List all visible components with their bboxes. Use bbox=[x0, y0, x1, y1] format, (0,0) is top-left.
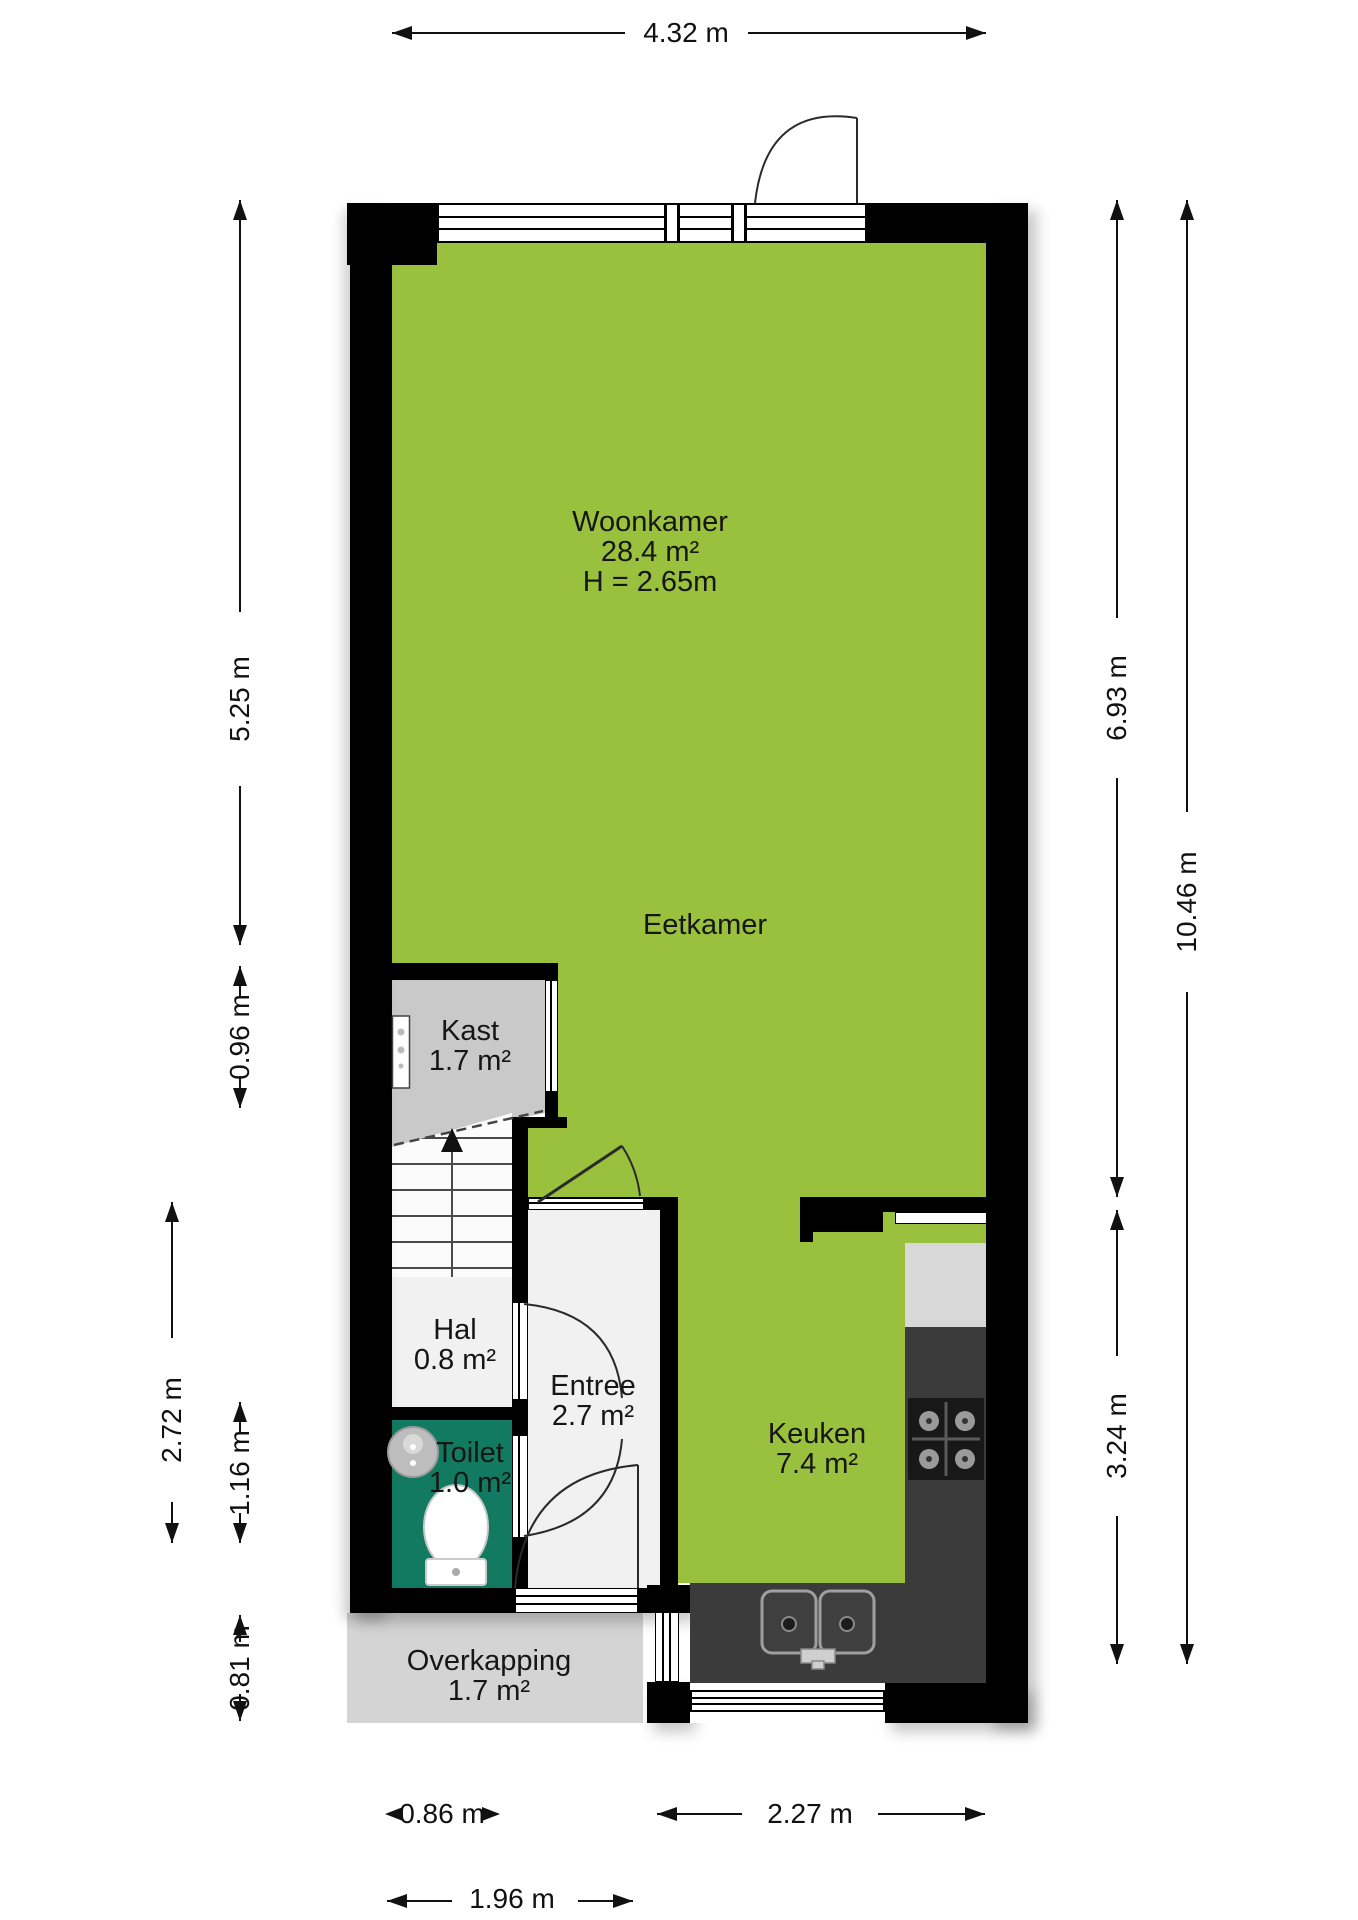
room-name: Toilet bbox=[370, 1438, 570, 1468]
label-hal: Hal 0.8 m² bbox=[355, 1315, 555, 1375]
dimension-left-woonkamer: 5.25 m bbox=[225, 614, 255, 784]
room-area: 2.7 m² bbox=[493, 1401, 693, 1431]
label-keuken: Keuken 7.4 m² bbox=[717, 1419, 917, 1479]
door-swing-entree-top-icon bbox=[538, 1146, 640, 1202]
label-eetkamer: Eetkamer bbox=[605, 910, 805, 940]
room-name: Kast bbox=[370, 1016, 570, 1046]
room-name: Overkapping bbox=[389, 1646, 589, 1676]
room-name: Woonkamer bbox=[500, 507, 800, 537]
stair-headroom-line bbox=[394, 1111, 543, 1145]
room-area: 28.4 m² bbox=[500, 537, 800, 567]
room-name: Keuken bbox=[717, 1419, 917, 1449]
label-woonkamer: Woonkamer 28.4 m² H = 2.65m bbox=[500, 507, 800, 597]
room-name: Entree bbox=[493, 1371, 693, 1401]
room-name: Eetkamer bbox=[605, 910, 805, 940]
stove-icon bbox=[908, 1398, 984, 1480]
door-swing-terrace-icon bbox=[755, 116, 857, 203]
kitchen-sink-icon bbox=[762, 1591, 874, 1669]
plan-overlay bbox=[0, 0, 1358, 1920]
dimension-top-width: 4.32 m bbox=[601, 18, 771, 48]
room-height: H = 2.65m bbox=[500, 567, 800, 597]
label-entree: Entree 2.7 m² bbox=[493, 1371, 693, 1431]
room-name: Hal bbox=[355, 1315, 555, 1345]
stair-up-arrow-icon bbox=[441, 1128, 463, 1152]
dimension-bottom-keuken: 2.27 m bbox=[725, 1799, 895, 1829]
label-kast: Kast 1.7 m² bbox=[370, 1016, 570, 1076]
dimension-bottom-overkapping: 1.96 m bbox=[427, 1884, 597, 1914]
dimension-left-overkapping: 0.81 m bbox=[225, 1583, 255, 1753]
dimension-right-keuken: 3.24 m bbox=[1102, 1351, 1132, 1521]
room-area: 1.0 m² bbox=[370, 1468, 570, 1498]
dimension-left-outer: 2.72 m bbox=[157, 1335, 187, 1505]
label-toilet: Toilet 1.0 m² bbox=[370, 1438, 570, 1498]
dimension-right-total: 10.46 m bbox=[1172, 817, 1202, 987]
dimension-left-toilet: 1.16 m bbox=[225, 1388, 255, 1558]
dimension-bottom-door: 0.86 m bbox=[357, 1799, 527, 1829]
dimension-right-upper: 6.93 m bbox=[1102, 613, 1132, 783]
label-overkapping: Overkapping 1.7 m² bbox=[389, 1646, 589, 1706]
floor-plan: Woonkamer 28.4 m² H = 2.65m Eetkamer Kas… bbox=[0, 0, 1358, 1920]
room-area: 1.7 m² bbox=[389, 1676, 589, 1706]
toilet-icon bbox=[424, 1485, 488, 1585]
room-area: 7.4 m² bbox=[717, 1449, 917, 1479]
dimension-left-kast: 0.96 m bbox=[225, 952, 255, 1122]
room-area: 1.7 m² bbox=[370, 1046, 570, 1076]
dimension-lines bbox=[165, 26, 1194, 1908]
